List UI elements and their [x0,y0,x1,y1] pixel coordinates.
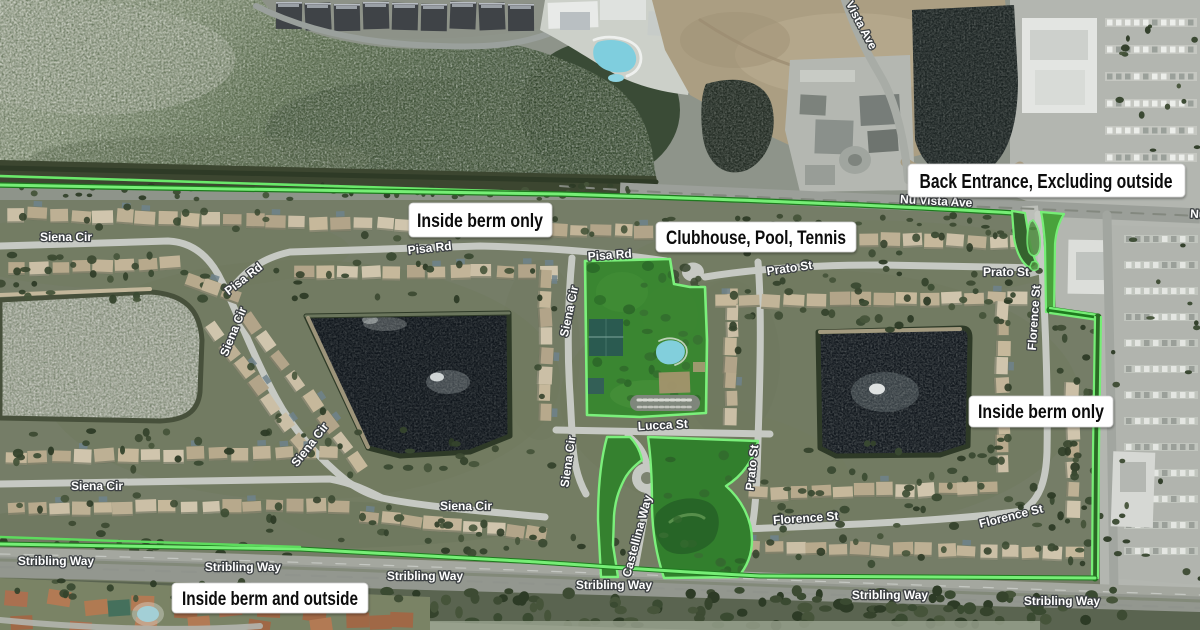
svg-text:Nu: Nu [1190,207,1200,222]
svg-text:Inside berm only: Inside berm only [417,211,543,232]
svg-text:Siena Cir: Siena Cir [440,499,492,513]
svg-text:Siena Cir: Siena Cir [40,230,92,244]
svg-text:Inside berm only: Inside berm only [978,402,1104,423]
svg-text:Lucca St: Lucca St [637,417,688,434]
svg-text:Stribling Way: Stribling Way [576,578,653,592]
svg-text:Prato St: Prato St [983,265,1029,279]
svg-text:Stribling Way: Stribling Way [18,554,95,568]
svg-text:Stribling Way: Stribling Way [852,588,929,602]
svg-text:Siena Cir: Siena Cir [71,479,123,493]
svg-text:Stribling Way: Stribling Way [205,560,282,574]
svg-text:Back Entrance, Excluding outsi: Back Entrance, Excluding outside [920,171,1173,193]
svg-text:Inside berm and outside: Inside berm and outside [182,589,358,610]
svg-text:Stribling Way: Stribling Way [387,569,464,583]
svg-text:Stribling Way: Stribling Way [1024,594,1101,608]
svg-text:Clubhouse, Pool, Tennis: Clubhouse, Pool, Tennis [666,228,846,249]
